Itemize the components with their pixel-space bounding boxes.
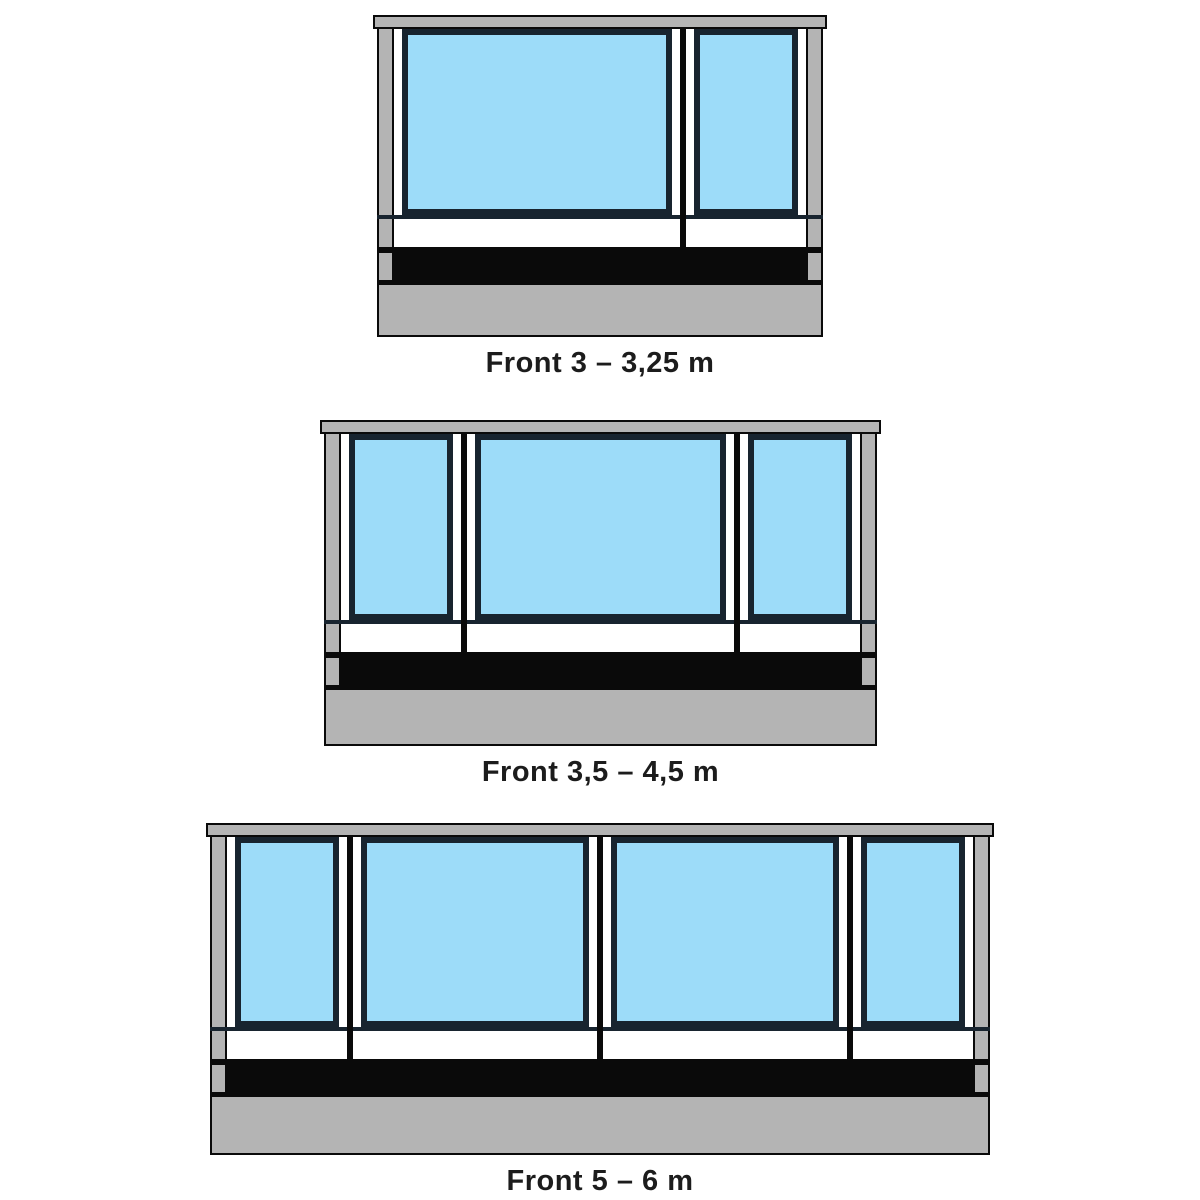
- mullion-line: [680, 29, 686, 247]
- frame-post-notch: [806, 253, 823, 280]
- edge-strip: [852, 434, 860, 620]
- skirt-band-black: [210, 1065, 990, 1097]
- mullion-line: [734, 434, 740, 652]
- mullion-line: [461, 434, 467, 652]
- mullion-divider: [839, 837, 861, 1027]
- window-pane-large: [402, 29, 672, 215]
- front-panel-3-325m: Front 3 – 3,25 m: [377, 15, 823, 380]
- top-rail: [320, 420, 881, 434]
- frame-post: [860, 434, 877, 620]
- window-pane-small: [694, 29, 798, 215]
- edge-strip: [341, 434, 349, 620]
- mullion-divider: [589, 837, 611, 1027]
- frame-post: [806, 29, 823, 215]
- mullion-line: [847, 837, 853, 1059]
- window-pane-large: [361, 837, 589, 1027]
- mullion-divider: [726, 434, 748, 620]
- frame-post-notch: [377, 253, 394, 280]
- frame-post-notch: [973, 1065, 990, 1092]
- frame-post: [324, 624, 341, 652]
- panel-body: [377, 29, 823, 337]
- skirt-fill: [394, 253, 806, 285]
- frame-post: [210, 837, 227, 1027]
- edge-strip: [394, 29, 402, 215]
- window-pane-small: [861, 837, 965, 1027]
- mullion-line: [347, 837, 353, 1059]
- window-pane-small: [748, 434, 852, 620]
- skirt-band-black: [377, 253, 823, 285]
- mullion-divider: [453, 434, 475, 620]
- frame-post: [377, 29, 394, 215]
- edge-strip: [798, 29, 806, 215]
- window-row: [377, 29, 823, 219]
- top-rail: [373, 15, 827, 29]
- window-row: [324, 434, 877, 624]
- frame-post: [860, 624, 877, 652]
- frame-post-notch: [210, 1065, 227, 1092]
- frame-post: [324, 434, 341, 620]
- top-rail: [206, 823, 994, 837]
- edge-strip: [227, 837, 235, 1027]
- panel-label: Front 3,5 – 4,5 m: [324, 756, 877, 789]
- rail-band-white: [377, 219, 823, 253]
- rail-band-white: [324, 624, 877, 658]
- panel-body: [210, 837, 990, 1155]
- frame-post: [210, 1031, 227, 1059]
- diagram-canvas: Front 3 – 3,25 m Front 3,5 – 4,5 m Front…: [0, 0, 1200, 1200]
- window-pane-large: [475, 434, 726, 620]
- front-panel-35-45m: Front 3,5 – 4,5 m: [324, 420, 877, 789]
- frame-post-notch: [860, 658, 877, 685]
- panel-label: Front 3 – 3,25 m: [377, 347, 823, 380]
- frame-post: [973, 837, 990, 1027]
- frame-post-notch: [324, 658, 341, 685]
- base-skirt: [324, 690, 877, 746]
- skirt-fill: [227, 1065, 973, 1097]
- window-pane-large: [611, 837, 839, 1027]
- rail-fill: [341, 624, 860, 652]
- frame-post: [806, 219, 823, 247]
- frame-post: [973, 1031, 990, 1059]
- mullion-divider: [339, 837, 361, 1027]
- base-skirt: [210, 1097, 990, 1155]
- window-pane-small: [349, 434, 453, 620]
- skirt-fill: [341, 658, 860, 690]
- window-row: [210, 837, 990, 1031]
- panel-label: Front 5 – 6 m: [210, 1165, 990, 1198]
- panel-body: [324, 434, 877, 746]
- mullion-divider: [672, 29, 694, 215]
- base-skirt: [377, 285, 823, 337]
- window-pane-small: [235, 837, 339, 1027]
- mullion-line: [597, 837, 603, 1059]
- skirt-band-black: [324, 658, 877, 690]
- front-panel-5-6m: Front 5 – 6 m: [210, 823, 990, 1198]
- rail-fill: [394, 219, 806, 247]
- edge-strip: [965, 837, 973, 1027]
- frame-post: [377, 219, 394, 247]
